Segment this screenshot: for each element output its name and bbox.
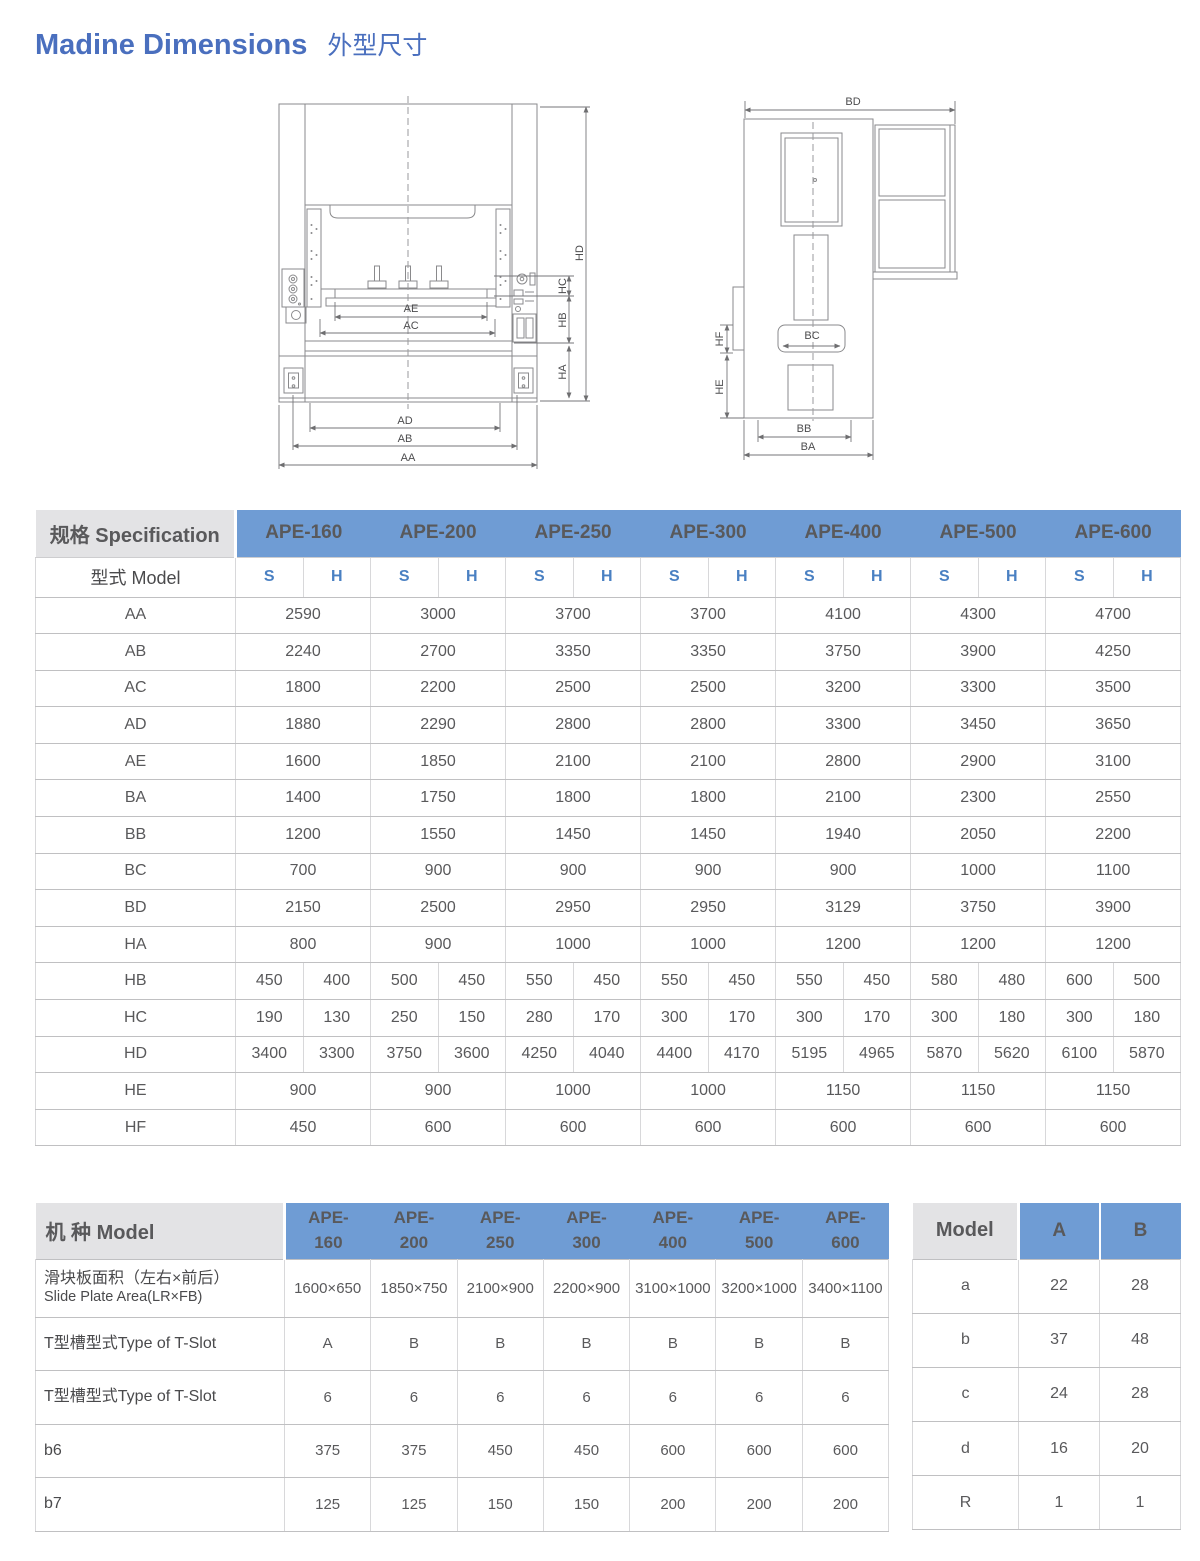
model-value: 1600×650 bbox=[285, 1259, 371, 1317]
model-value: 450 bbox=[457, 1424, 543, 1478]
spec-value: 3700 bbox=[506, 597, 641, 634]
spec-row: AC1800220025002500320033003500 bbox=[36, 670, 1181, 707]
spec-value: 3600 bbox=[438, 1036, 506, 1073]
spec-value: 3750 bbox=[371, 1036, 439, 1073]
model-value: B bbox=[371, 1317, 457, 1371]
model-row: b7125125150150200200200 bbox=[36, 1478, 889, 1532]
dim-label-ba: BA bbox=[801, 441, 816, 453]
tslot-row: c2428 bbox=[913, 1367, 1181, 1421]
model-header: APE- 400 bbox=[630, 1203, 716, 1259]
spec-value: 450 bbox=[708, 963, 776, 1000]
spec-row: BD2150250029502950312937503900 bbox=[36, 890, 1181, 927]
spec-value: 450 bbox=[236, 963, 304, 1000]
spec-value: 3300 bbox=[303, 1036, 371, 1073]
sub-col-s: S bbox=[1046, 557, 1114, 597]
spec-value: 300 bbox=[641, 1000, 709, 1037]
spec-value: 1200 bbox=[911, 926, 1046, 963]
spec-row-label: BB bbox=[36, 817, 236, 854]
spec-value: 900 bbox=[506, 853, 641, 890]
spec-value: 2590 bbox=[236, 597, 371, 634]
spec-value: 3350 bbox=[641, 634, 776, 671]
page-title-zh: 外型尺寸 bbox=[327, 32, 427, 60]
row-label-zh: b6 bbox=[44, 1442, 284, 1460]
spec-value: 1400 bbox=[236, 780, 371, 817]
model-header: APE-200 bbox=[371, 510, 506, 557]
tslot-value: 28 bbox=[1100, 1367, 1181, 1421]
model-name-line2: 250 bbox=[457, 1231, 543, 1256]
model-value: B bbox=[716, 1317, 802, 1371]
model-name-line2: 500 bbox=[716, 1231, 802, 1256]
side-view-diagram: BD BC BB BA HF HE bbox=[703, 88, 973, 478]
spec-value: 2290 bbox=[371, 707, 506, 744]
spec-value: 130 bbox=[303, 1000, 371, 1037]
tslot-value: 22 bbox=[1019, 1259, 1100, 1313]
model-name-line2: 200 bbox=[371, 1231, 457, 1256]
spec-value: 180 bbox=[1113, 1000, 1181, 1037]
spec-value: 600 bbox=[1046, 1109, 1181, 1146]
spec-value: 190 bbox=[236, 1000, 304, 1037]
model-header-row: 机 种 Model APE- 160 APE- 200 APE- 250 APE… bbox=[36, 1203, 889, 1259]
model-header: APE-400 bbox=[776, 510, 911, 557]
spec-value: 2100 bbox=[506, 743, 641, 780]
model-value: B bbox=[457, 1317, 543, 1371]
model-value: 125 bbox=[371, 1478, 457, 1532]
spec-row: AB2240270033503350375039004250 bbox=[36, 634, 1181, 671]
row-label-zh: 滑块板面积（左右×前后） bbox=[44, 1270, 284, 1288]
dim-label-ab: AB bbox=[398, 433, 413, 445]
model-header: APE- 300 bbox=[543, 1203, 629, 1259]
model-value: 6 bbox=[543, 1371, 629, 1425]
model-name-line1: APE- bbox=[286, 1206, 371, 1231]
spec-value: 500 bbox=[1113, 963, 1181, 1000]
model-name-line2: 300 bbox=[543, 1231, 629, 1256]
spec-value: 3700 bbox=[641, 597, 776, 634]
model-value: 200 bbox=[802, 1478, 888, 1532]
spec-row-label: HA bbox=[36, 926, 236, 963]
spec-value: 170 bbox=[573, 1000, 641, 1037]
dim-label-he: HE bbox=[714, 379, 726, 394]
spec-row-label: AC bbox=[36, 670, 236, 707]
spec-value: 900 bbox=[371, 926, 506, 963]
spec-value: 170 bbox=[708, 1000, 776, 1037]
spec-value: 300 bbox=[776, 1000, 844, 1037]
model-header: APE- 200 bbox=[371, 1203, 457, 1259]
spec-value: 5870 bbox=[911, 1036, 979, 1073]
tslot-row: R11 bbox=[913, 1476, 1181, 1530]
spec-value: 4040 bbox=[573, 1036, 641, 1073]
spec-row: HB45040050045055045055045055045058048060… bbox=[36, 963, 1181, 1000]
machine-side-outline bbox=[733, 119, 957, 418]
model-row: T型槽型式Type of T-SlotABBBBBB bbox=[36, 1317, 889, 1371]
tslot-dimension-table: Model A B a2228b3748c2428d1620R11 bbox=[912, 1203, 1181, 1530]
spec-value: 1850 bbox=[371, 743, 506, 780]
spec-value: 2150 bbox=[236, 890, 371, 927]
model-row: 滑块板面积（左右×前后）Slide Plate Area(LR×FB)1600×… bbox=[36, 1259, 889, 1317]
model-name-line2: 600 bbox=[802, 1231, 888, 1256]
spec-value: 1200 bbox=[776, 926, 911, 963]
spec-value: 1800 bbox=[506, 780, 641, 817]
spec-header-label: 规格 Specification bbox=[36, 510, 236, 557]
spec-value: 1940 bbox=[776, 817, 911, 854]
spec-value: 170 bbox=[843, 1000, 911, 1037]
model-row-label: 滑块板面积（左右×前后）Slide Plate Area(LR×FB) bbox=[36, 1259, 285, 1317]
spec-value: 150 bbox=[438, 1000, 506, 1037]
sub-col-s: S bbox=[236, 557, 304, 597]
model-name-line1: APE- bbox=[716, 1206, 802, 1231]
spec-value: 450 bbox=[843, 963, 911, 1000]
spec-row-label: AE bbox=[36, 743, 236, 780]
dim-label-ha: HA bbox=[557, 364, 569, 380]
model-name-line2: 160 bbox=[286, 1231, 371, 1256]
spec-row-label: HF bbox=[36, 1109, 236, 1146]
spec-value: 500 bbox=[371, 963, 439, 1000]
spec-value: 1600 bbox=[236, 743, 371, 780]
spec-value: 1000 bbox=[506, 1073, 641, 1110]
spec-value: 3750 bbox=[911, 890, 1046, 927]
model-value: 600 bbox=[802, 1424, 888, 1478]
model-value: 200 bbox=[716, 1478, 802, 1532]
tslot-row: a2228 bbox=[913, 1259, 1181, 1313]
page-title: Madine Dimensions外型尺寸 bbox=[35, 26, 427, 62]
spec-value: 550 bbox=[506, 963, 574, 1000]
dim-label-hc: HC bbox=[557, 278, 569, 294]
spec-value: 1000 bbox=[641, 1073, 776, 1110]
model-header: APE-250 bbox=[506, 510, 641, 557]
tslot-value: 1 bbox=[1019, 1476, 1100, 1530]
spec-value: 450 bbox=[236, 1109, 371, 1146]
tslot-row: b3748 bbox=[913, 1313, 1181, 1367]
spec-row-label: HB bbox=[36, 963, 236, 1000]
spec-value: 1550 bbox=[371, 817, 506, 854]
model-value: 6 bbox=[802, 1371, 888, 1425]
model-header: APE-600 bbox=[1046, 510, 1181, 557]
spec-value: 4300 bbox=[911, 597, 1046, 634]
spec-row-label: HE bbox=[36, 1073, 236, 1110]
spec-value: 4965 bbox=[843, 1036, 911, 1073]
spec-value: 1150 bbox=[776, 1073, 911, 1110]
spec-value: 450 bbox=[438, 963, 506, 1000]
spec-value: 2200 bbox=[1046, 817, 1181, 854]
model-value: 450 bbox=[543, 1424, 629, 1478]
spec-value: 4700 bbox=[1046, 597, 1181, 634]
spec-value: 2500 bbox=[506, 670, 641, 707]
spec-subheader-row: 型式 Model S H S H S H S H S H S H S H bbox=[36, 557, 1181, 597]
spec-value: 2200 bbox=[371, 670, 506, 707]
row-label-zh: T型槽型式Type of T-Slot bbox=[44, 1335, 284, 1353]
model-value: 600 bbox=[716, 1424, 802, 1478]
spec-value: 600 bbox=[641, 1109, 776, 1146]
model-value: 375 bbox=[285, 1424, 371, 1478]
model-value: 375 bbox=[371, 1424, 457, 1478]
model-row-label: T型槽型式Type of T-Slot bbox=[36, 1317, 285, 1371]
model-name-line1: APE- bbox=[371, 1206, 457, 1231]
spec-value: 600 bbox=[776, 1109, 911, 1146]
model-row-label: b7 bbox=[36, 1478, 285, 1532]
sub-col-h: H bbox=[1113, 557, 1181, 597]
spec-value: 180 bbox=[978, 1000, 1046, 1037]
spec-value: 2900 bbox=[911, 743, 1046, 780]
spec-value: 250 bbox=[371, 1000, 439, 1037]
model-header: APE-500 bbox=[911, 510, 1046, 557]
spec-value: 2700 bbox=[371, 634, 506, 671]
spec-row: HE90090010001000115011501150 bbox=[36, 1073, 1181, 1110]
model-value: 3100×1000 bbox=[630, 1259, 716, 1317]
spec-value: 3300 bbox=[776, 707, 911, 744]
spec-value: 4250 bbox=[1046, 634, 1181, 671]
model-value: 150 bbox=[543, 1478, 629, 1532]
spec-value: 4250 bbox=[506, 1036, 574, 1073]
spec-value: 300 bbox=[911, 1000, 979, 1037]
tslot-row-label: b bbox=[913, 1313, 1019, 1367]
model-header: APE- 160 bbox=[285, 1203, 371, 1259]
spec-value: 2800 bbox=[776, 743, 911, 780]
spec-value: 2240 bbox=[236, 634, 371, 671]
spec-value: 700 bbox=[236, 853, 371, 890]
spec-value: 1200 bbox=[236, 817, 371, 854]
dim-label-bc: BC bbox=[804, 330, 819, 342]
spec-value: 5195 bbox=[776, 1036, 844, 1073]
model-value: 6 bbox=[630, 1371, 716, 1425]
spec-row: AE1600185021002100280029003100 bbox=[36, 743, 1181, 780]
model-value: 3200×1000 bbox=[716, 1259, 802, 1317]
model-value: 125 bbox=[285, 1478, 371, 1532]
model-header: APE- 250 bbox=[457, 1203, 543, 1259]
tslot-value: 20 bbox=[1100, 1422, 1181, 1476]
spec-row-label: BA bbox=[36, 780, 236, 817]
spec-row: BA1400175018001800210023002550 bbox=[36, 780, 1181, 817]
spec-value: 1800 bbox=[236, 670, 371, 707]
row-label-zh: T型槽型式Type of T-Slot bbox=[44, 1388, 284, 1406]
spec-row-label: AA bbox=[36, 597, 236, 634]
dim-label-hd: HD bbox=[574, 245, 586, 261]
spec-value: 1150 bbox=[1046, 1073, 1181, 1110]
spec-row: BC70090090090090010001100 bbox=[36, 853, 1181, 890]
sub-col-s: S bbox=[641, 557, 709, 597]
spec-value: 1450 bbox=[641, 817, 776, 854]
spec-value: 580 bbox=[911, 963, 979, 1000]
spec-row-label: HD bbox=[36, 1036, 236, 1073]
spec-value: 2100 bbox=[776, 780, 911, 817]
spec-value: 6100 bbox=[1046, 1036, 1114, 1073]
spec-value: 2800 bbox=[506, 707, 641, 744]
spec-value: 800 bbox=[236, 926, 371, 963]
dim-label-ad: AD bbox=[397, 415, 412, 427]
front-view-diagram: AE AC AD AB AA HD HC HB HA bbox=[268, 93, 598, 488]
spec-value: 4170 bbox=[708, 1036, 776, 1073]
spec-value: 600 bbox=[911, 1109, 1046, 1146]
specification-table: 规格 Specification APE-160 APE-200 APE-250… bbox=[35, 510, 1181, 1146]
spec-value: 2800 bbox=[641, 707, 776, 744]
spec-value: 5620 bbox=[978, 1036, 1046, 1073]
model-value: 6 bbox=[716, 1371, 802, 1425]
spec-value: 3500 bbox=[1046, 670, 1181, 707]
spec-value: 1000 bbox=[506, 926, 641, 963]
spec-value: 550 bbox=[641, 963, 709, 1000]
spec-value: 550 bbox=[776, 963, 844, 1000]
model-name-line1: APE- bbox=[457, 1206, 543, 1231]
spec-value: 3350 bbox=[506, 634, 641, 671]
model-value: 6 bbox=[285, 1371, 371, 1425]
sub-col-h: H bbox=[978, 557, 1046, 597]
sub-col-s: S bbox=[506, 557, 574, 597]
model-name-line1: APE- bbox=[630, 1206, 716, 1231]
catalog-page: Madine Dimensions外型尺寸 bbox=[0, 0, 1200, 1561]
model-value: B bbox=[802, 1317, 888, 1371]
spec-value: 280 bbox=[506, 1000, 574, 1037]
spec-value: 2950 bbox=[641, 890, 776, 927]
tslot-header-row: Model A B bbox=[913, 1203, 1181, 1259]
tslot-row-label: c bbox=[913, 1367, 1019, 1421]
spec-value: 2300 bbox=[911, 780, 1046, 817]
model-value: 2100×900 bbox=[457, 1259, 543, 1317]
spec-value: 2500 bbox=[371, 890, 506, 927]
dim-label-ac: AC bbox=[403, 320, 418, 332]
spec-value: 3000 bbox=[371, 597, 506, 634]
right-control-panel bbox=[513, 273, 536, 342]
sub-col-s: S bbox=[776, 557, 844, 597]
spec-value: 900 bbox=[641, 853, 776, 890]
spec-value: 1450 bbox=[506, 817, 641, 854]
spec-row: BB1200155014501450194020502200 bbox=[36, 817, 1181, 854]
tslot-col-a: A bbox=[1019, 1203, 1100, 1259]
spec-value: 1000 bbox=[911, 853, 1046, 890]
tslot-value: 37 bbox=[1019, 1313, 1100, 1367]
spec-value: 2100 bbox=[641, 743, 776, 780]
spec-value: 3129 bbox=[776, 890, 911, 927]
dim-label-bd: BD bbox=[845, 96, 860, 108]
spec-value: 2950 bbox=[506, 890, 641, 927]
row-label-en: Slide Plate Area(LR×FB) bbox=[44, 1289, 284, 1306]
spec-value: 2550 bbox=[1046, 780, 1181, 817]
model-value: B bbox=[630, 1317, 716, 1371]
spec-row: HC19013025015028017030017030017030018030… bbox=[36, 1000, 1181, 1037]
spec-value: 300 bbox=[1046, 1000, 1114, 1037]
spec-value: 1000 bbox=[641, 926, 776, 963]
dim-label-bb: BB bbox=[797, 423, 812, 435]
tslot-row: d1620 bbox=[913, 1422, 1181, 1476]
spec-row-label: BD bbox=[36, 890, 236, 927]
dim-label-hf: HF bbox=[714, 331, 726, 346]
spec-value: 3200 bbox=[776, 670, 911, 707]
tslot-value: 48 bbox=[1100, 1313, 1181, 1367]
spec-value: 600 bbox=[506, 1109, 641, 1146]
dim-label-hb: HB bbox=[557, 312, 569, 327]
sub-col-s: S bbox=[371, 557, 439, 597]
model-value: A bbox=[285, 1317, 371, 1371]
model-table: 机 种 Model APE- 160 APE- 200 APE- 250 APE… bbox=[35, 1203, 889, 1532]
spec-row: HF450600600600600600600 bbox=[36, 1109, 1181, 1146]
model-header: APE- 600 bbox=[802, 1203, 888, 1259]
model-value: 200 bbox=[630, 1478, 716, 1532]
sub-col-h: H bbox=[438, 557, 506, 597]
model-value: 1850×750 bbox=[371, 1259, 457, 1317]
page-title-en: Madine Dimensions bbox=[35, 29, 307, 61]
dim-label-aa: AA bbox=[401, 452, 416, 464]
spec-value: 4100 bbox=[776, 597, 911, 634]
spec-value: 1800 bbox=[641, 780, 776, 817]
spec-value: 400 bbox=[303, 963, 371, 1000]
spec-row: HD34003300375036004250404044004170519549… bbox=[36, 1036, 1181, 1073]
sub-col-h: H bbox=[303, 557, 371, 597]
model-value: 3400×1100 bbox=[802, 1259, 888, 1317]
row-label-zh: b7 bbox=[44, 1495, 284, 1513]
spec-value: 3650 bbox=[1046, 707, 1181, 744]
spec-value: 3400 bbox=[236, 1036, 304, 1073]
spec-value: 900 bbox=[371, 1073, 506, 1110]
model-value: 6 bbox=[457, 1371, 543, 1425]
model-row-label: T型槽型式Type of T-Slot bbox=[36, 1371, 285, 1425]
tslot-col-b: B bbox=[1100, 1203, 1181, 1259]
tslot-header-label: Model bbox=[913, 1203, 1019, 1259]
model-value: 600 bbox=[630, 1424, 716, 1478]
spec-value: 450 bbox=[573, 963, 641, 1000]
spec-row: HA80090010001000120012001200 bbox=[36, 926, 1181, 963]
spec-value: 3300 bbox=[911, 670, 1046, 707]
tslot-row-label: a bbox=[913, 1259, 1019, 1313]
model-value: 150 bbox=[457, 1478, 543, 1532]
model-value: B bbox=[543, 1317, 629, 1371]
model-header-label: 机 种 Model bbox=[36, 1203, 285, 1259]
sub-col-h: H bbox=[843, 557, 911, 597]
spec-value: 480 bbox=[978, 963, 1046, 1000]
spec-value: 3900 bbox=[1046, 890, 1181, 927]
spec-value: 1880 bbox=[236, 707, 371, 744]
spec-row-label: AB bbox=[36, 634, 236, 671]
spec-row-label: BC bbox=[36, 853, 236, 890]
left-control-box bbox=[282, 269, 306, 323]
dim-label-ae: AE bbox=[404, 303, 419, 315]
tslot-value: 24 bbox=[1019, 1367, 1100, 1421]
model-row: T型槽型式Type of T-Slot6666666 bbox=[36, 1371, 889, 1425]
spec-row-label: AD bbox=[36, 707, 236, 744]
model-name-line2: 400 bbox=[630, 1231, 716, 1256]
tslot-row-label: d bbox=[913, 1422, 1019, 1476]
spec-value: 900 bbox=[371, 853, 506, 890]
spec-value: 3900 bbox=[911, 634, 1046, 671]
spec-value: 4400 bbox=[641, 1036, 709, 1073]
model-row-label: 型式 Model bbox=[36, 557, 236, 597]
spec-value: 1750 bbox=[371, 780, 506, 817]
spec-value: 900 bbox=[776, 853, 911, 890]
model-header: APE- 500 bbox=[716, 1203, 802, 1259]
model-row-label: b6 bbox=[36, 1424, 285, 1478]
spec-row: AA2590300037003700410043004700 bbox=[36, 597, 1181, 634]
spec-value: 600 bbox=[371, 1109, 506, 1146]
sub-col-s: S bbox=[911, 557, 979, 597]
model-name-line1: APE- bbox=[543, 1206, 629, 1231]
model-name-line1: APE- bbox=[802, 1206, 888, 1231]
spec-value: 3100 bbox=[1046, 743, 1181, 780]
spec-value: 600 bbox=[1046, 963, 1114, 1000]
sub-col-h: H bbox=[573, 557, 641, 597]
spec-value: 1150 bbox=[911, 1073, 1046, 1110]
spec-value: 1200 bbox=[1046, 926, 1181, 963]
spec-row: AD1880229028002800330034503650 bbox=[36, 707, 1181, 744]
spec-row-label: HC bbox=[36, 1000, 236, 1037]
tslot-value: 16 bbox=[1019, 1422, 1100, 1476]
model-row: b6375375450450600600600 bbox=[36, 1424, 889, 1478]
model-value: 6 bbox=[371, 1371, 457, 1425]
spec-value: 5870 bbox=[1113, 1036, 1181, 1073]
tslot-value: 28 bbox=[1100, 1259, 1181, 1313]
model-value: 2200×900 bbox=[543, 1259, 629, 1317]
spec-value: 3750 bbox=[776, 634, 911, 671]
spec-header-row: 规格 Specification APE-160 APE-200 APE-250… bbox=[36, 510, 1181, 557]
spec-value: 900 bbox=[236, 1073, 371, 1110]
sub-col-h: H bbox=[708, 557, 776, 597]
model-header: APE-160 bbox=[236, 510, 371, 557]
tslot-row-label: R bbox=[913, 1476, 1019, 1530]
